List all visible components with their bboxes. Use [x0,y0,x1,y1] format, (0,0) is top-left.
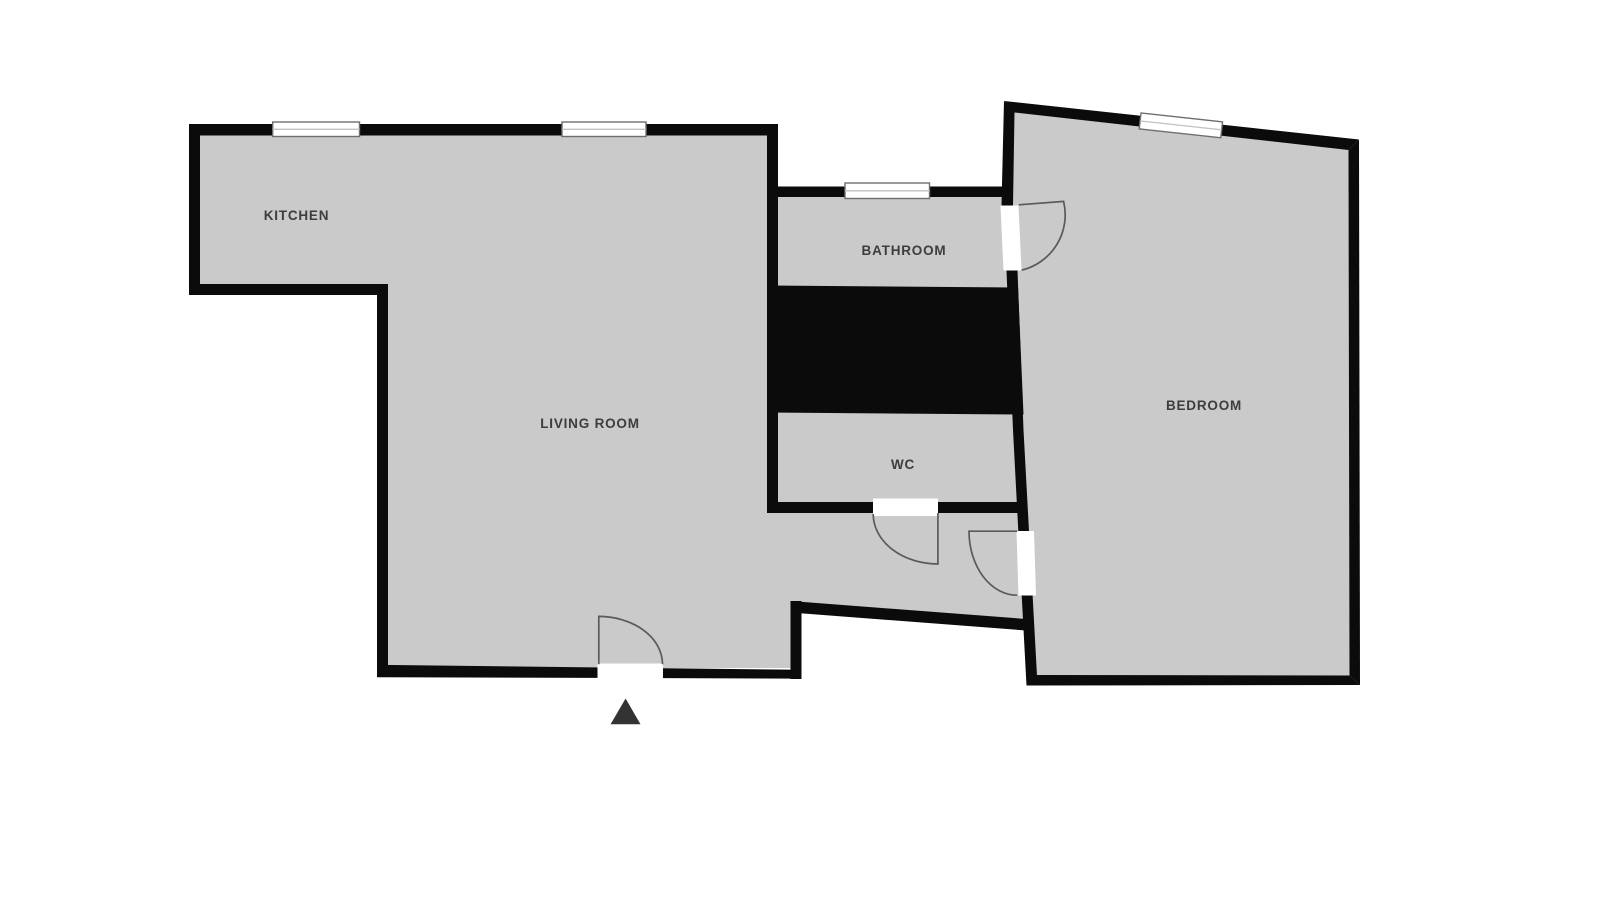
svg-text:LIVING ROOM: LIVING ROOM [540,416,640,431]
svg-text:BEDROOM: BEDROOM [1166,398,1242,413]
svg-text:KITCHEN: KITCHEN [264,208,330,223]
svg-text:BATHROOM: BATHROOM [862,243,947,258]
svg-text:WC: WC [891,457,915,472]
